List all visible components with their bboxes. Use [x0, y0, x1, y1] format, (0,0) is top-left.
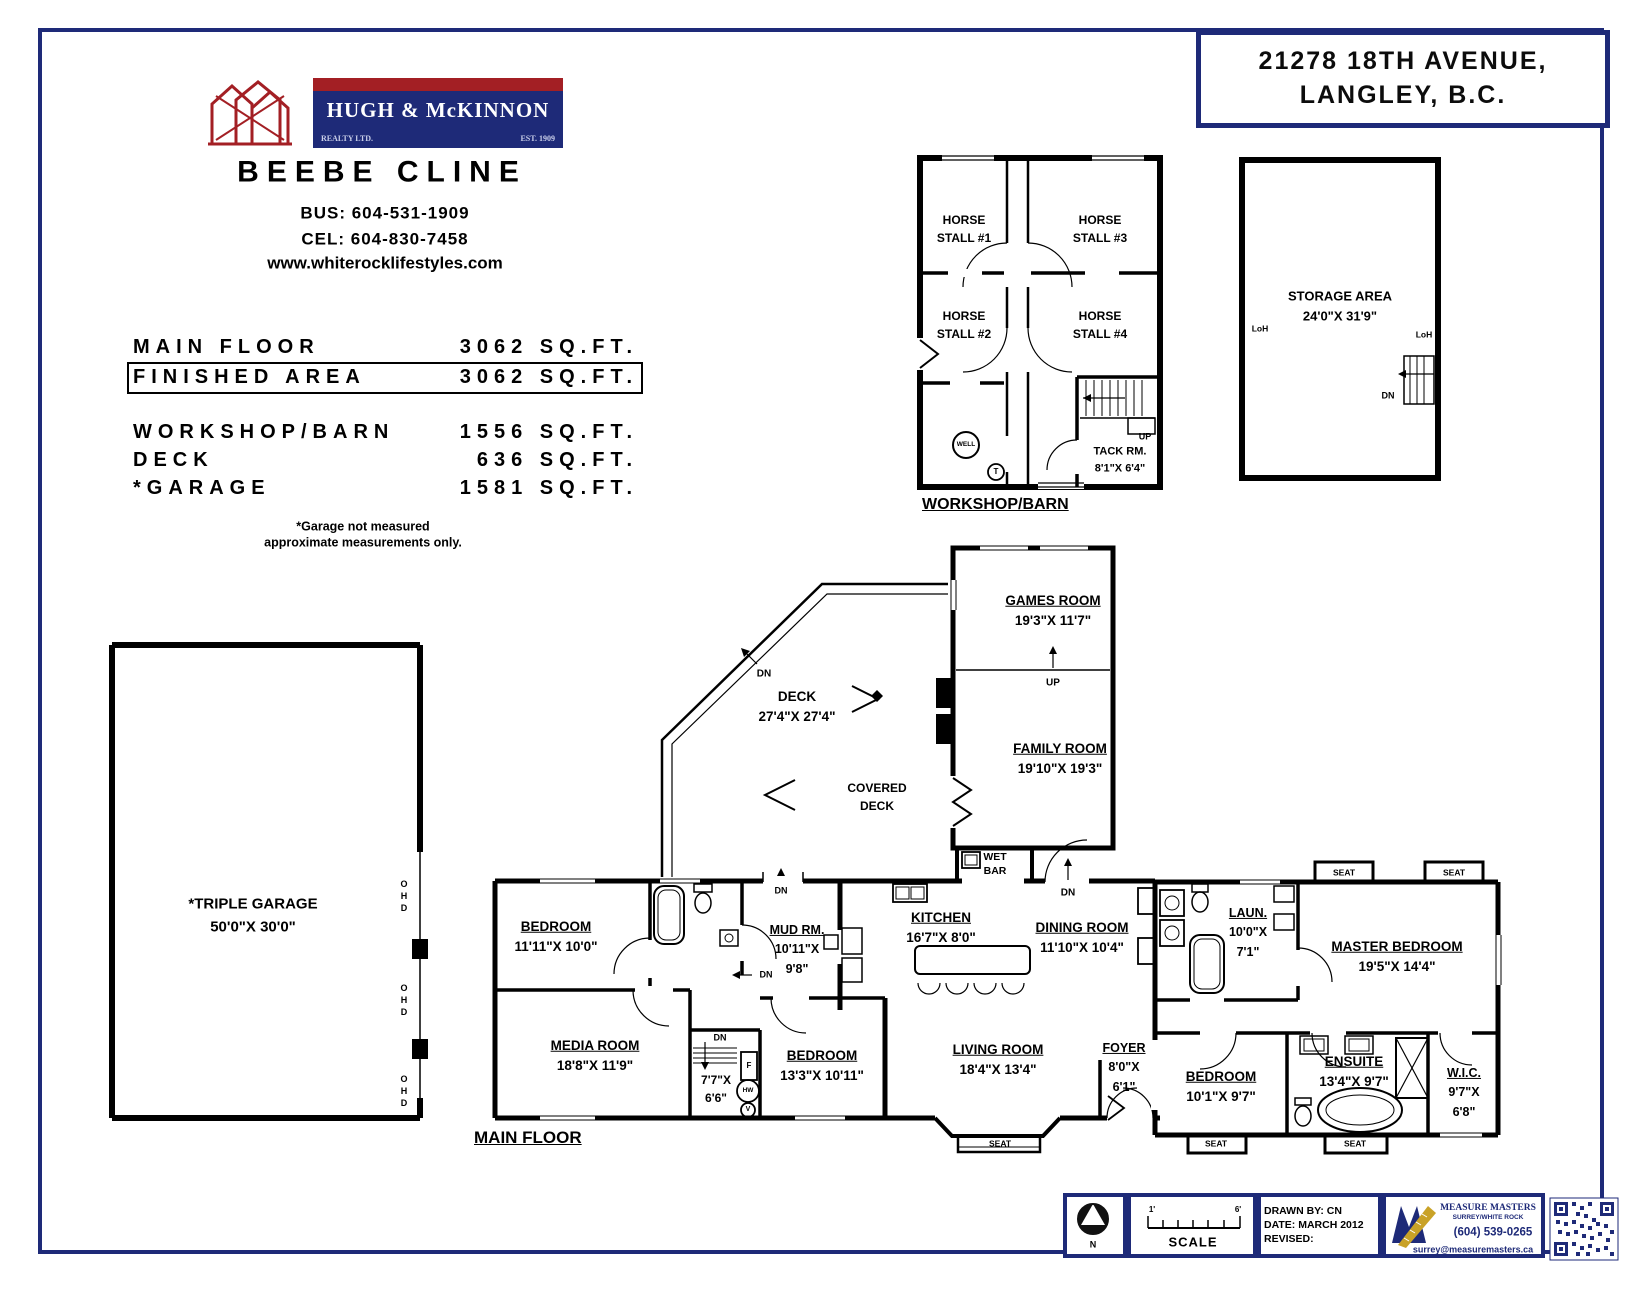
- measure-masters-region: SURREY/WHITE ROCK: [1453, 1213, 1524, 1223]
- games-room-label: GAMES ROOM19'3"X 11'7": [1005, 591, 1100, 632]
- loh-label-right: LoH: [1416, 329, 1433, 342]
- agent-website: www.whiterocklifestyles.com: [267, 250, 503, 276]
- brand-logo-box: HUGH & McKINNON REALTY LTD. EST. 1909: [313, 78, 563, 148]
- garage-plan: [112, 645, 428, 1118]
- triple-garage-label: *TRIPLE GARAGE50'0"X 30'0": [188, 894, 317, 939]
- deck-label: DECK27'4"X 27'4": [758, 687, 835, 728]
- brand-name: HUGH & McKINNON: [313, 98, 563, 123]
- tack-room-label: TACK RM.8'1"X 6'4": [1094, 444, 1147, 477]
- storage-dn-label: DN: [1382, 389, 1395, 403]
- area-value: 3062 SQ.FT.: [460, 336, 638, 362]
- area-row: DECK 636 SQ.FT.: [133, 449, 638, 475]
- brand-realty: REALTY LTD.: [321, 134, 373, 143]
- utility-dn-label: DN: [714, 1031, 727, 1045]
- drawn-by-label: DRAWN BY: CN: [1264, 1205, 1342, 1217]
- mud-room-label: MUD RM. 10'11"X 9'8": [770, 921, 825, 979]
- brand-est: EST. 1909: [520, 134, 555, 143]
- workshop-barn-title: WORKSHOP/BARN: [922, 496, 1069, 514]
- thermostat-label: T: [994, 466, 999, 478]
- scale-label: SCALE: [1168, 1232, 1217, 1252]
- address-line1: 21278 18TH AVENUE,: [1259, 45, 1548, 79]
- ohd-label-3: OHD: [399, 1074, 409, 1110]
- area-value: 636 SQ.FT.: [477, 449, 638, 475]
- bedroom3-label: BEDROOM10'1"X 9'7": [1186, 1067, 1257, 1108]
- family-room-label: FAMILY ROOM19'10"X 19'3": [1013, 739, 1107, 780]
- agent-bus-phone: BUS: 604-531-1909: [300, 200, 469, 226]
- ohd-label-1: OHD: [399, 879, 409, 915]
- measure-masters-phone: (604) 539-0265: [1454, 1224, 1533, 1241]
- agent-name: BEEBE CLINE: [237, 150, 527, 195]
- area-value: 3062 SQ.FT.: [460, 366, 638, 392]
- area-row: MAIN FLOOR 3062 SQ.FT.: [133, 336, 638, 362]
- master-bedroom-label: MASTER BEDROOM19'5"X 14'4": [1331, 937, 1462, 978]
- seat-label-master2: SEAT: [1443, 867, 1465, 880]
- scale-min-label: 1': [1149, 1204, 1155, 1216]
- well-label: WELL: [957, 440, 975, 450]
- seat-label-master1: SEAT: [1333, 867, 1355, 880]
- horse-stall-2-label: HORSESTALL #2: [937, 307, 991, 343]
- ensuite-label: ENSUITE13'4"X 9'7": [1319, 1052, 1389, 1093]
- storage-area-label: STORAGE AREA24'0"X 31'9": [1288, 287, 1392, 326]
- revised-label: REVISED:: [1264, 1233, 1314, 1245]
- area-row: FINISHED AREA 3062 SQ.FT.: [133, 366, 638, 392]
- area-label: *GARAGE: [133, 477, 271, 503]
- barn-up-label: UP: [1139, 430, 1152, 444]
- brand-logo-red-band: [313, 78, 563, 91]
- utility-dims-label: 7'7"X6'6": [701, 1071, 731, 1107]
- covered-deck-label: COVEREDDECK: [847, 779, 906, 815]
- area-label: FINISHED AREA: [133, 366, 366, 392]
- dining-room-label: DINING ROOM11'10"X 10'4": [1036, 918, 1129, 959]
- up-label: UP: [1046, 676, 1060, 691]
- area-label: WORKSHOP/BARN: [133, 421, 394, 447]
- area-label: MAIN FLOOR: [133, 336, 320, 362]
- hall-dn-label: DN: [760, 968, 773, 982]
- deck-dn-label: DN: [757, 667, 771, 682]
- dining-dn-label: DN: [1061, 886, 1075, 901]
- scale-max-label: 6': [1235, 1204, 1241, 1216]
- bedroom1-label: BEDROOM11'11"X 10'0": [514, 917, 597, 958]
- bedroom2-label: BEDROOM13'3"X 10'11": [780, 1046, 864, 1087]
- date-label: DATE: MARCH 2012: [1264, 1219, 1364, 1231]
- horse-stall-3-label: HORSESTALL #3: [1073, 211, 1127, 247]
- vacuum-label: V: [746, 1105, 751, 1116]
- measure-masters-email: surrey@measuremasters.ca: [1413, 1243, 1533, 1257]
- loh-label-left: LoH: [1252, 323, 1269, 336]
- agent-cel-phone: CEL: 604-830-7458: [301, 226, 468, 252]
- seat-label-living: SEAT: [989, 1138, 1011, 1151]
- seat-label-ensuite: SEAT: [1344, 1138, 1366, 1151]
- area-label: DECK: [133, 449, 214, 475]
- north-label: N: [1090, 1238, 1097, 1252]
- laundry-label: LAUN. 10'0"X 7'1": [1229, 904, 1267, 962]
- living-room-label: LIVING ROOM18'4"X 13'4": [953, 1040, 1044, 1081]
- horse-stall-1-label: HORSESTALL #1: [937, 211, 991, 247]
- foyer-label: FOYER 8'0"X 6'1": [1102, 1039, 1145, 1097]
- area-value: 1581 SQ.FT.: [460, 477, 638, 503]
- wet-bar-label: WETBAR: [983, 850, 1006, 878]
- seat-label-bedroom3: SEAT: [1205, 1138, 1227, 1151]
- area-value: 1556 SQ.FT.: [460, 421, 638, 447]
- area-row: *GARAGE 1581 SQ.FT.: [133, 477, 638, 503]
- feature-sheet-page: HUGH & McKINNON REALTY LTD. EST. 1909 BE…: [0, 0, 1650, 1292]
- media-room-label: MEDIA ROOM18'8"X 11'9": [551, 1036, 640, 1077]
- furnace-label: F: [747, 1060, 752, 1072]
- mud-top-dn-label: DN: [775, 884, 788, 898]
- wic-label: W.I.C. 9'7"X 6'8": [1447, 1064, 1481, 1122]
- hot-water-label: HW: [743, 1086, 754, 1096]
- kitchen-label: KITCHEN16'7"X 8'0": [906, 908, 976, 949]
- garage-note-2: approximate measurements only.: [264, 534, 462, 553]
- ohd-label-2: OHD: [399, 983, 409, 1019]
- horse-stall-4-label: HORSESTALL #4: [1073, 307, 1127, 343]
- address-line2: LANGLEY, B.C.: [1300, 79, 1507, 113]
- property-address-box: 21278 18TH AVENUE, LANGLEY, B.C.: [1196, 30, 1610, 128]
- main-floor-title: MAIN FLOOR: [474, 1128, 582, 1148]
- area-row: WORKSHOP/BARN 1556 SQ.FT.: [133, 421, 638, 447]
